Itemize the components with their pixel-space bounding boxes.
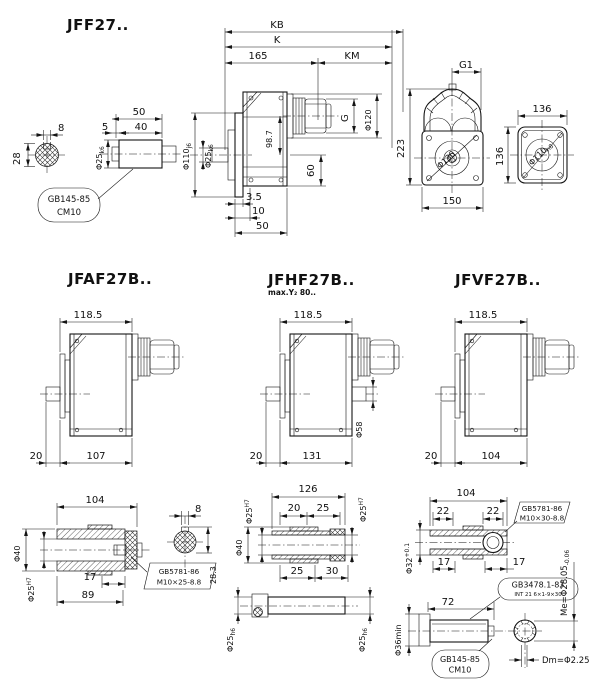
- callout-cm10: CM10: [57, 208, 81, 218]
- dim-20-bushing: 20: [288, 503, 301, 514]
- dim-dia40-bushing: Φ40: [235, 540, 244, 556]
- title-jfaf27: JFAF27B..: [67, 270, 152, 288]
- dim-dm: Dm=Φ2.25: [542, 656, 590, 666]
- dim-98-7: 98.7: [265, 130, 274, 148]
- dim-150: 150: [442, 196, 461, 207]
- detail-hollow-shaft-b: 104 22 22 Φ32+0.1 17 17 GB5781-86 M10×30…: [404, 488, 578, 619]
- dim-dia110j6: Φ110j6: [182, 143, 193, 170]
- view-jfvf27-side: 118.5 20 104: [425, 310, 579, 467]
- dim-118-5-left: 118.5: [74, 310, 103, 321]
- dim-165: 165: [248, 51, 267, 62]
- dim-20-right: 20: [425, 451, 438, 462]
- view-jff27-flange: Φ110h8 136 136: [495, 104, 574, 190]
- callout-gb5781-a: GB5781-86: [159, 567, 200, 576]
- dim-20-mid: 20: [250, 451, 263, 462]
- dim-dia36min: Φ36min: [394, 624, 403, 656]
- dim-key-width-a: 8: [195, 504, 201, 515]
- dim-dia25h7-bushing-right: Φ25H7: [358, 497, 368, 522]
- dim-dia25h6-left: Φ25h6: [226, 628, 237, 652]
- dim-dia58: Φ58: [355, 422, 364, 438]
- dim-shaft-50: 50: [133, 107, 146, 118]
- title-jfhf27-sub: max.Y₂ 80..: [268, 288, 316, 297]
- view-jff27-keyseat-section: 8 28: [12, 123, 66, 174]
- view-jff27-front: Φ130 G1 223 150: [396, 60, 490, 212]
- dim-kb: KB: [270, 20, 284, 31]
- callout-gb145-b: GB145-85: [440, 655, 480, 664]
- dim-dia25k6-main: Φ25k6: [204, 144, 215, 168]
- dim-20-left: 20: [30, 451, 43, 462]
- callout-gb145-85: GB145-85: [48, 195, 91, 205]
- callout-gb3478: GB3478.1-83: [512, 581, 565, 590]
- gear-unit-dimension-drawing: JFF27.. 8 28 50 5 40 Φ25k6 GB145-85 CM10: [0, 0, 610, 688]
- view-jfaf27-side: 118.5 20 107: [30, 310, 184, 467]
- dim-22a: 22: [437, 506, 450, 517]
- technical-drawing-page: JFF27.. 8 28 50 5 40 Φ25k6 GB145-85 CM10: [0, 0, 610, 688]
- dim-shaft-dia25k6: Φ25k6: [95, 146, 106, 170]
- dim-10: 10: [252, 206, 265, 217]
- dim-22b: 22: [487, 506, 500, 517]
- detail-through-shaft: Φ25h6 Φ25h6: [226, 587, 374, 652]
- dim-50b: 50: [256, 221, 269, 232]
- dim-dia25h6-right: Φ25h6: [358, 628, 369, 652]
- title-jfhf27: JFHF27B..: [267, 271, 355, 289]
- callout-cm10-b: CM10: [449, 666, 472, 675]
- dim-104-a: 104: [85, 495, 104, 506]
- dim-km: KM: [344, 51, 359, 62]
- dim-k: K: [274, 35, 281, 46]
- dim-89: 89: [82, 590, 95, 601]
- dim-136-left: 136: [495, 147, 506, 166]
- dim-dia25h7-a: Φ25H7: [26, 577, 36, 602]
- dim-dia25h7-bushing-left: Φ25H7: [244, 499, 254, 524]
- dim-25b: 25: [291, 566, 304, 577]
- dim-dia120: Φ120: [364, 109, 373, 131]
- dim-118-5-right: 118.5: [469, 310, 498, 321]
- dim-dia32: Φ32+0.1: [404, 543, 414, 574]
- dim-136-top: 136: [532, 104, 551, 115]
- dim-17-a: 17: [84, 572, 97, 583]
- dim-g1: G1: [459, 60, 473, 71]
- dim-17a-b: 17: [438, 557, 451, 568]
- dim-key-width: 8: [58, 123, 64, 134]
- dim-104-right: 104: [481, 451, 500, 462]
- dim-60: 60: [306, 164, 317, 177]
- dim-126: 126: [298, 484, 317, 495]
- callout-m10x30: M10×30-8.8: [520, 514, 565, 523]
- dim-30: 30: [326, 566, 339, 577]
- page-title-jff27: JFF27..: [66, 16, 129, 34]
- view-jff27-side: KB K 165 KM G Φ120 98.7 60 Φ110j6 Φ25k6 …: [182, 20, 403, 237]
- dim-118-5-mid: 118.5: [294, 310, 323, 321]
- dim-key-height: 28: [12, 152, 23, 165]
- dim-104-b: 104: [456, 488, 475, 499]
- dim-shaft-5: 5: [102, 122, 108, 133]
- title-jfvf27: JFVF27B..: [454, 271, 541, 289]
- callout-m10x25: M10×25-8.8: [157, 578, 202, 587]
- dim-25a: 25: [317, 503, 330, 514]
- dim-223: 223: [396, 139, 407, 158]
- dim-shaft-40: 40: [135, 122, 148, 133]
- callout-spline-spec: INT 21 6×1-9×30: [514, 592, 562, 598]
- detail-output-shaft-b: 72 Φ36min GB145-85 CM10: [394, 597, 506, 678]
- dim-dia40-a: Φ40: [13, 546, 22, 562]
- dim-g: G: [340, 114, 351, 122]
- dim-dia110h8: Φ110h8: [527, 140, 555, 169]
- dim-me: Me=Φ28.05-0.06: [560, 550, 571, 616]
- dim-107: 107: [86, 451, 105, 462]
- view-jfhf27-side: 118.5 Φ58 20 131: [250, 310, 404, 467]
- dim-3-5: 3.5: [246, 192, 262, 203]
- dim-17b-b: 17: [513, 557, 526, 568]
- dim-28-3: 28.3: [209, 566, 218, 584]
- dim-72: 72: [442, 597, 455, 608]
- dim-131: 131: [302, 451, 321, 462]
- callout-gb5781-b: GB5781-86: [522, 504, 563, 513]
- detail-bushing: 126 Φ25H7 Φ25H7 20 25 Φ40 25 30: [235, 484, 368, 582]
